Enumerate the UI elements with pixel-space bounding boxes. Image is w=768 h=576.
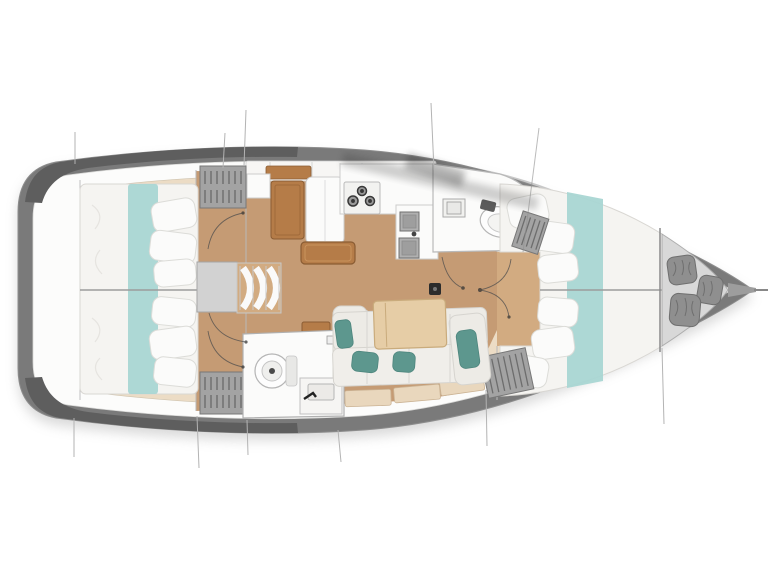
hinge-dot	[241, 211, 244, 214]
nav-locker	[247, 174, 270, 198]
hinge-dot	[461, 286, 465, 290]
aft-toilet-back	[286, 356, 297, 386]
pillow	[153, 258, 197, 288]
hinge-dot	[241, 365, 244, 368]
salon	[332, 299, 491, 407]
boat-floor-plan	[0, 0, 768, 576]
table-top	[373, 299, 447, 349]
sink-basin-inner	[403, 215, 416, 228]
companionway-platform	[197, 262, 237, 312]
aft-pillows-bottom	[148, 296, 198, 388]
shelf-brown	[266, 166, 311, 179]
burner-dot	[369, 200, 371, 202]
forward-head-sink-basin	[447, 202, 461, 214]
pillow	[530, 325, 576, 361]
teal-pillow	[351, 351, 379, 374]
bow-locker	[660, 228, 768, 352]
faucet	[412, 232, 417, 237]
sail-bag	[666, 254, 698, 286]
mast-post	[429, 283, 441, 295]
pillow	[537, 296, 579, 327]
teal-pillow	[392, 351, 415, 372]
burner-dot	[361, 190, 363, 192]
pillow	[148, 325, 198, 361]
chart-table	[271, 181, 304, 239]
forward-cabin-floor	[497, 252, 540, 346]
cabinet-face	[345, 389, 392, 407]
sink-basin-inner	[402, 241, 416, 255]
floor-plan-canvas	[0, 0, 768, 576]
aft-head	[243, 330, 344, 418]
pillow	[153, 356, 198, 388]
burner-dot	[352, 200, 354, 202]
aft-vanity-basin	[308, 384, 334, 400]
pillow	[537, 252, 580, 284]
sail-bag	[669, 293, 702, 327]
hinge-dot	[507, 315, 510, 318]
aft-toilet-drain	[269, 368, 275, 374]
hinge-dot	[244, 340, 247, 343]
aft-locker-bottom	[200, 372, 246, 414]
mast-center	[433, 287, 437, 291]
teal-pillow	[334, 319, 354, 349]
companionway	[197, 262, 281, 313]
pillow	[151, 296, 198, 328]
aft-pillows-top	[148, 196, 198, 287]
aft-locker-top	[200, 166, 246, 208]
hinge-dot	[478, 288, 482, 292]
salon-table	[373, 299, 447, 349]
rigging-line	[662, 348, 664, 424]
